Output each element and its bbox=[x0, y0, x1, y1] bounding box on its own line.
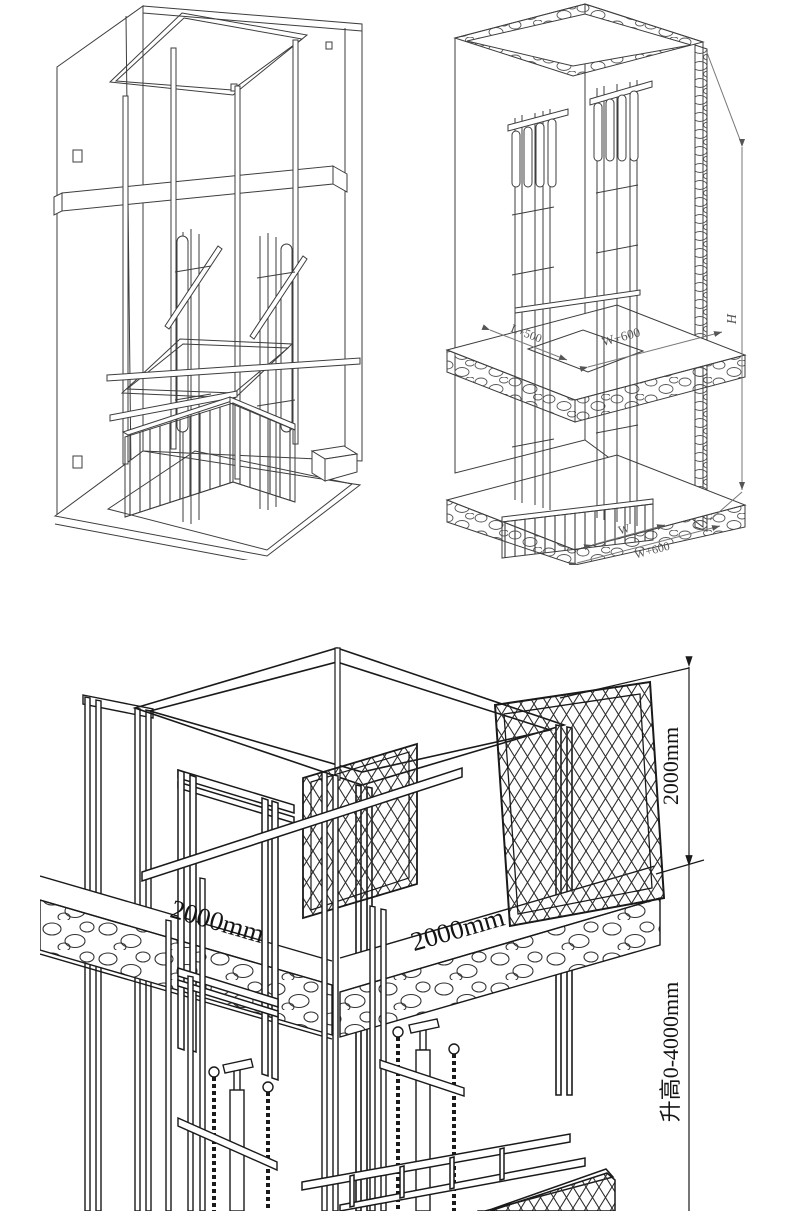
dim-label-travel-height: 升高0-4000mm bbox=[658, 982, 683, 1123]
technical-drawing-sheet: L+500 W+600 H W W+600 bbox=[0, 0, 792, 1211]
power-unit-box bbox=[312, 446, 357, 481]
dim-label-height: H bbox=[725, 313, 740, 325]
shaft-dimensioned-drawing: L+500 W+600 H W W+600 bbox=[440, 3, 792, 565]
dim-label-floor-spacing: 2000mm bbox=[658, 727, 683, 805]
shaft-cage-wireframe-drawing bbox=[45, 4, 390, 560]
right-mesh-door bbox=[495, 682, 664, 926]
shaft-walls bbox=[455, 4, 707, 531]
cage-detail-drawing: 2000mm 2000mm 2000mm 升高0-4000mm bbox=[40, 620, 792, 1211]
platform-base bbox=[302, 1134, 615, 1211]
